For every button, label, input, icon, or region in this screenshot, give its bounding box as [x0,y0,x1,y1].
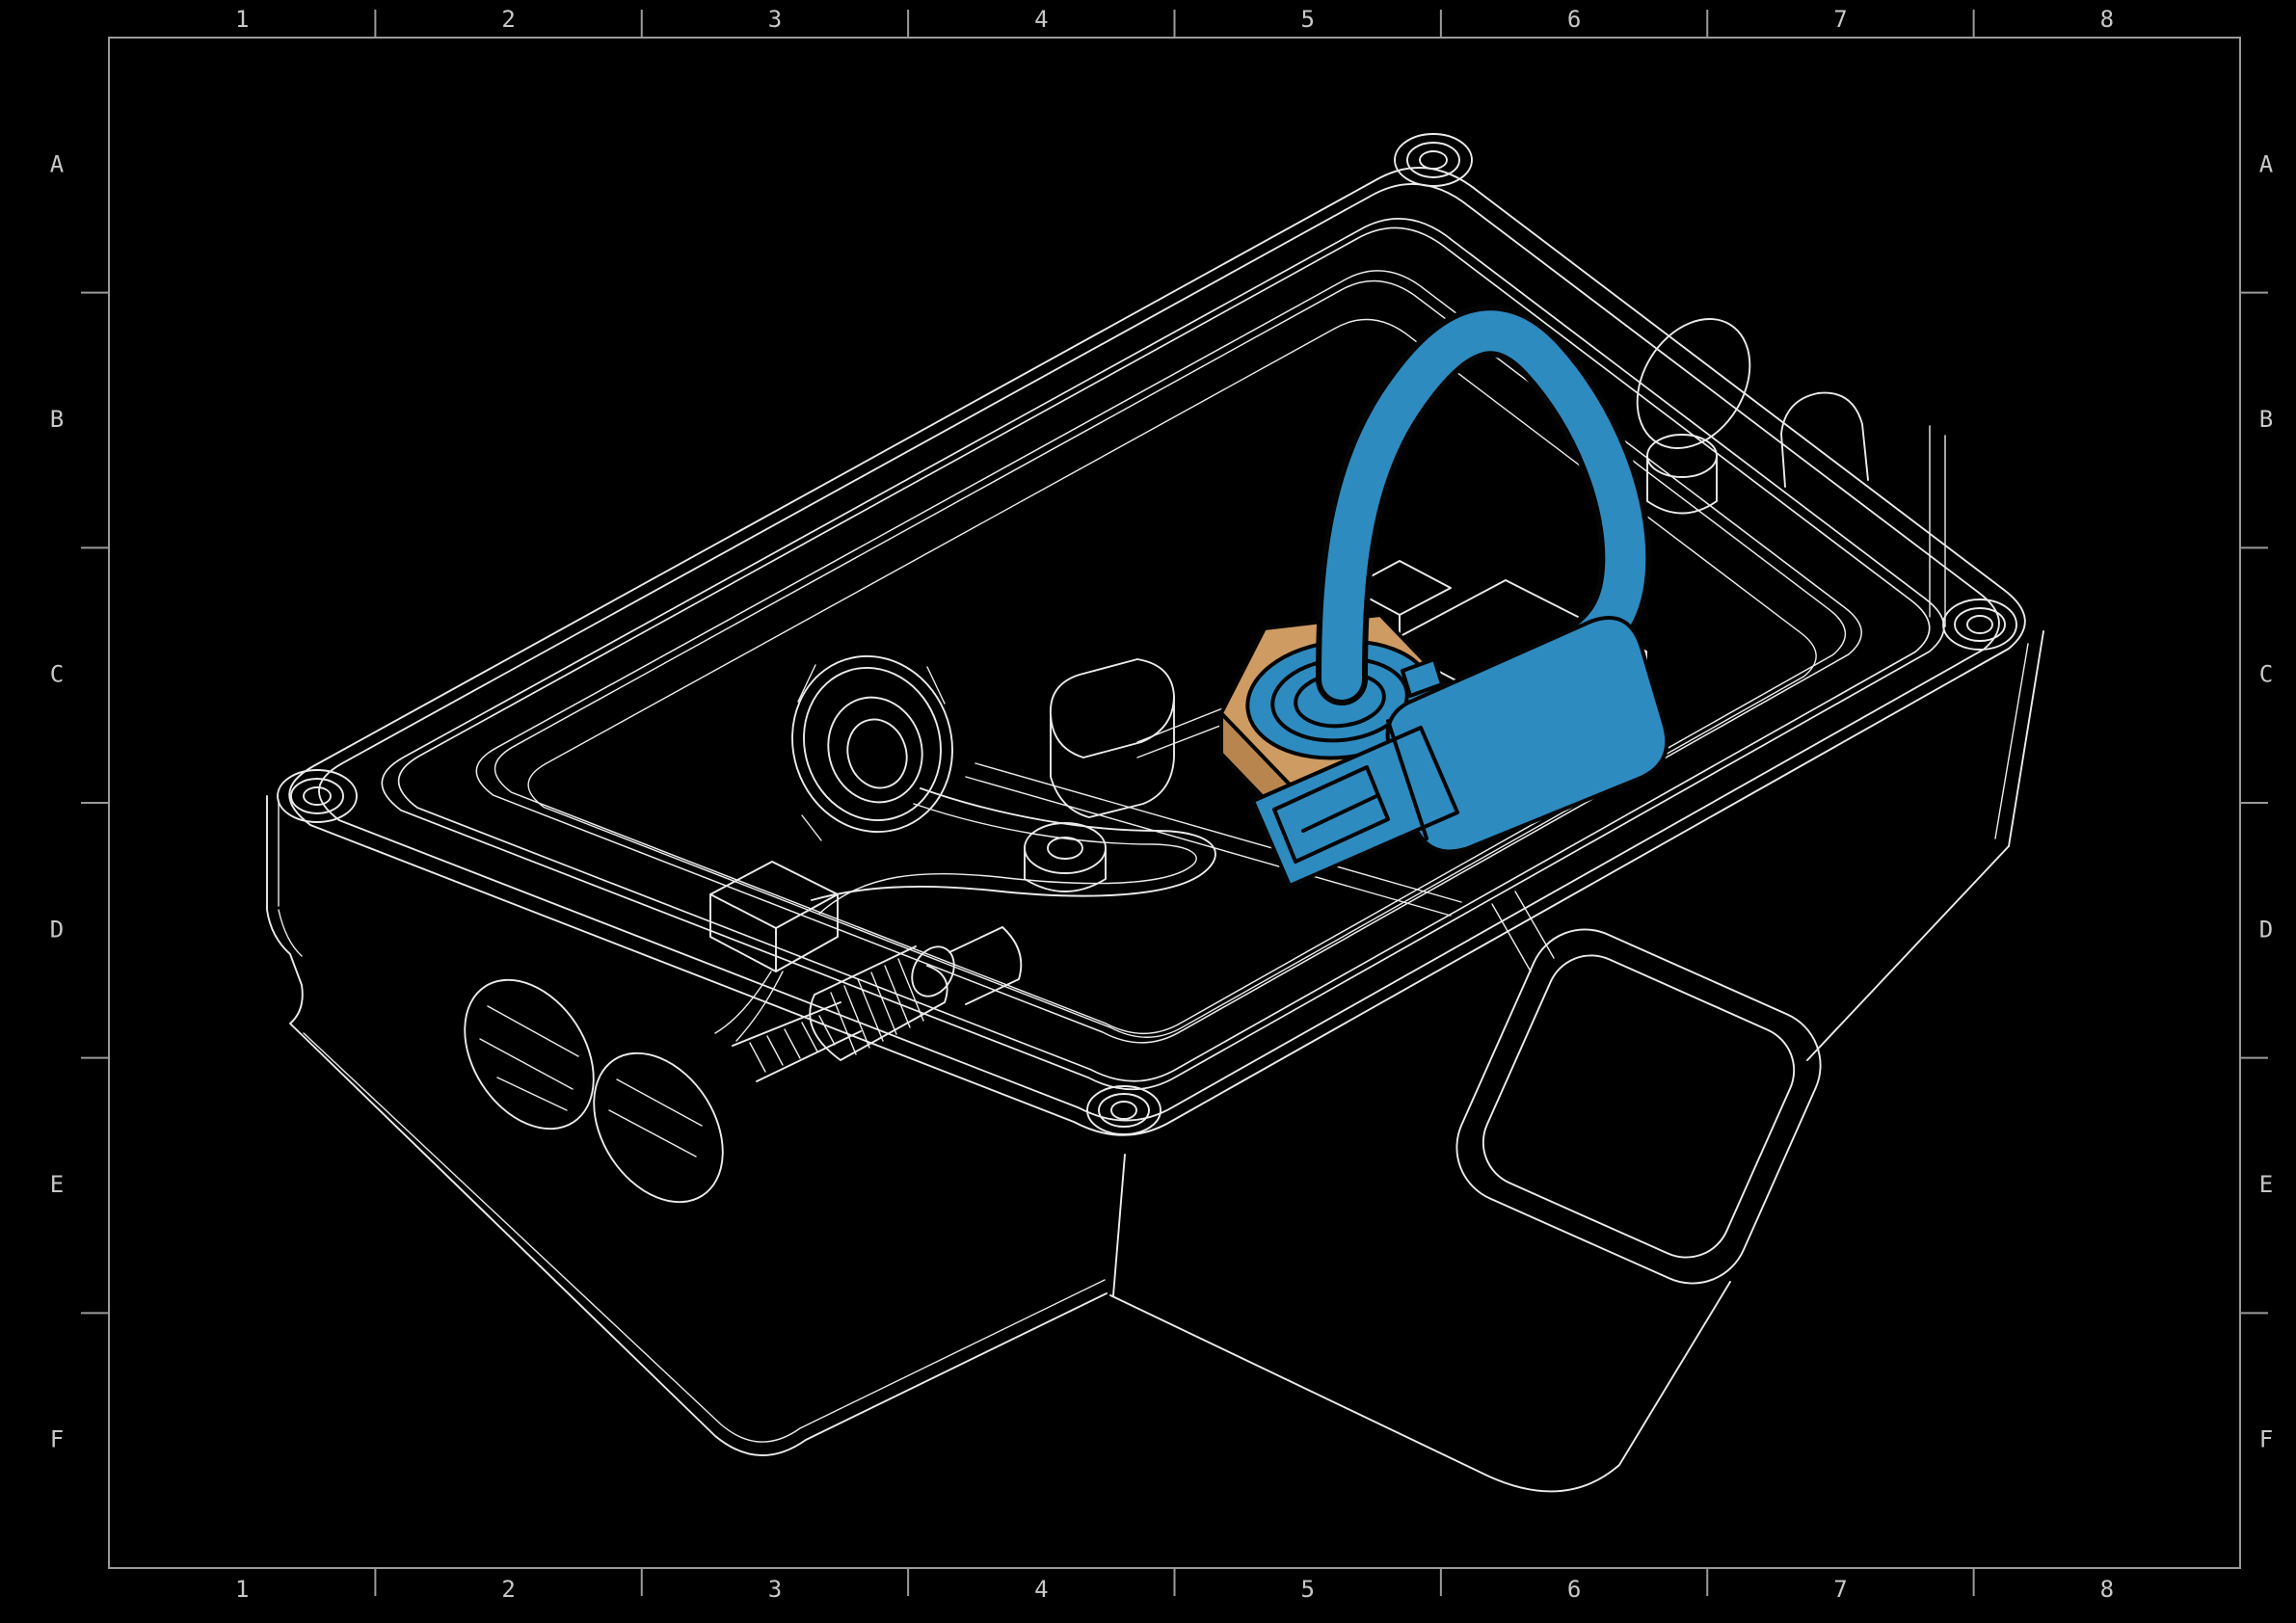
back-wall-oval-hole [1615,298,1774,468]
row-label-left: F [50,1426,64,1453]
row-label-left: E [50,1171,64,1198]
frame-zone-labels: 1122334455667788AABBCCDDEEFF [50,6,2274,1603]
wall-hole-lower [568,1029,750,1226]
row-label-right: D [2259,916,2273,943]
floor-standoffs [1025,659,1174,891]
screw-boss-bottom [1087,1086,1161,1134]
row-label-right: A [2259,150,2274,177]
cable-gland [770,635,1215,914]
row-label-right: C [2259,661,2273,688]
enclosure-rim [289,168,2025,1135]
enclosure-drawing [267,134,2043,1491]
column-label-bottom: 6 [1567,1576,1581,1603]
row-label-left: A [50,150,65,177]
sheet-frame: 1122334455667788AABBCCDDEEFF [50,6,2274,1603]
corner-screw-bosses [278,134,2016,1134]
column-label-top: 8 [2100,6,2114,33]
column-label-top: 7 [1833,6,1847,33]
column-label-bottom: 1 [235,1576,249,1603]
column-label-top: 3 [768,6,782,33]
column-label-top: 1 [235,6,249,33]
wall-hole-upper [439,956,621,1153]
row-label-left: D [50,916,64,943]
round-standoff [1647,435,1717,514]
column-label-bottom: 7 [1833,1576,1847,1603]
column-label-top: 5 [1300,6,1314,33]
screw-boss-top [1395,134,1472,186]
row-label-right: F [2259,1426,2273,1453]
front-wall-holes [439,956,750,1226]
row-label-right: E [2259,1171,2273,1198]
column-label-bottom: 8 [2100,1576,2114,1603]
sensor-assembly [710,862,1021,1081]
row-label-left: B [50,406,64,433]
column-label-top: 4 [1034,6,1048,33]
row-label-left: C [50,661,64,688]
frame-zone-ticks [81,10,2268,1596]
frame-border [109,38,2240,1568]
column-label-top: 2 [501,6,515,33]
enclosure-body [267,631,2043,1491]
column-label-bottom: 5 [1300,1576,1314,1603]
d-post [1051,659,1174,817]
column-label-bottom: 2 [501,1576,515,1603]
drawing-sheet: 1122334455667788AABBCCDDEEFF [0,0,2296,1623]
column-label-bottom: 3 [768,1576,782,1603]
column-label-top: 6 [1567,6,1581,33]
back-wall-pocket [1781,393,1868,487]
screw-boss-right [1943,599,2016,650]
column-label-bottom: 4 [1034,1576,1048,1603]
row-label-right: B [2259,406,2273,433]
side-flap [1439,891,1838,1301]
